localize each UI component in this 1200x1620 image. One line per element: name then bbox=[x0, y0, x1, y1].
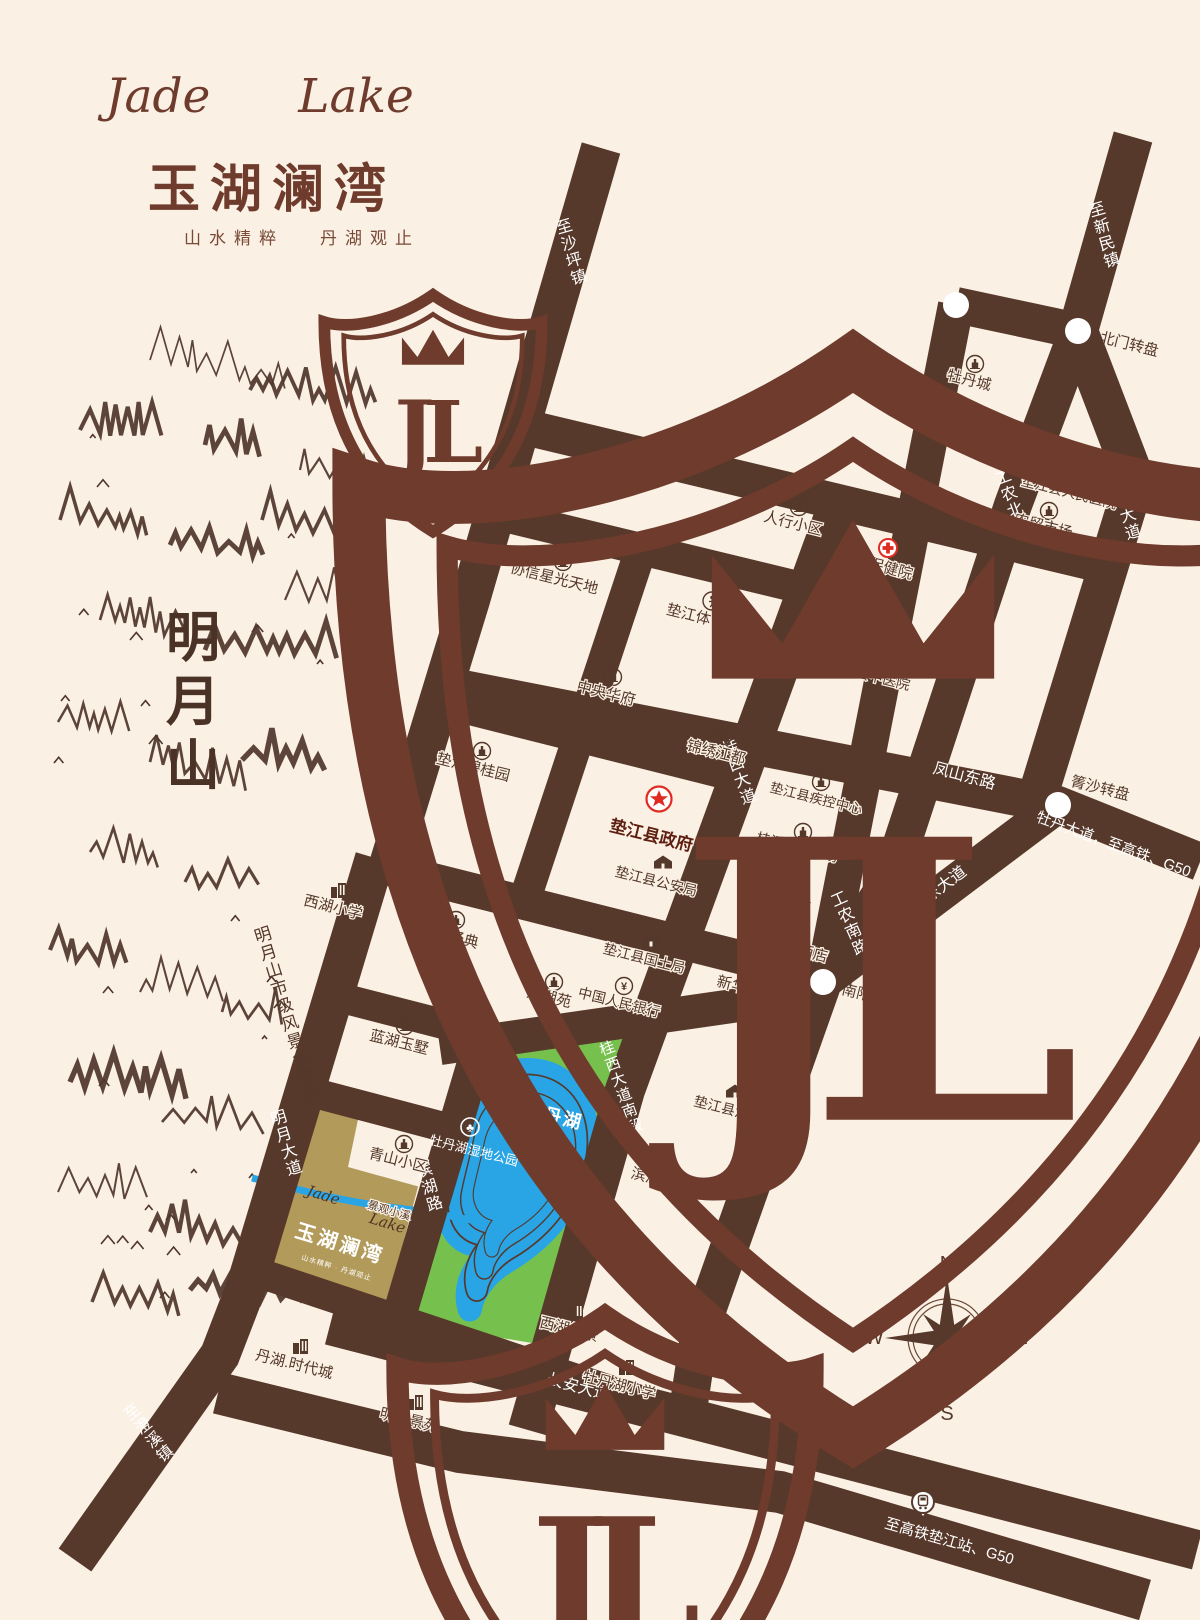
brand-title: 玉湖澜湾 bbox=[148, 159, 396, 220]
map-poster: JL 明月山 北门转盘箐沙 bbox=[0, 0, 1200, 1620]
brand-logo-left: Jade bbox=[98, 69, 211, 124]
government-star-icon[interactable] bbox=[647, 787, 672, 812]
brand-subtitle-left: 山水精粹 bbox=[184, 229, 284, 248]
brand-logo-right: Lake bbox=[297, 69, 414, 124]
svg-text:♣: ♣ bbox=[466, 1121, 474, 1135]
roundabout-circle[interactable] bbox=[1065, 318, 1091, 344]
road-north-link[interactable] bbox=[956, 305, 1078, 331]
hospital-cross-icon[interactable] bbox=[879, 539, 897, 557]
map-canvas: JL 明月山 北门转盘箐沙 bbox=[0, 0, 1200, 1620]
brand-subtitle-right: 丹湖观止 bbox=[320, 229, 420, 248]
roundabout-circle[interactable] bbox=[943, 292, 969, 318]
svg-text:¥: ¥ bbox=[621, 981, 628, 993]
mountain-name-label: 明月山 bbox=[166, 608, 220, 796]
